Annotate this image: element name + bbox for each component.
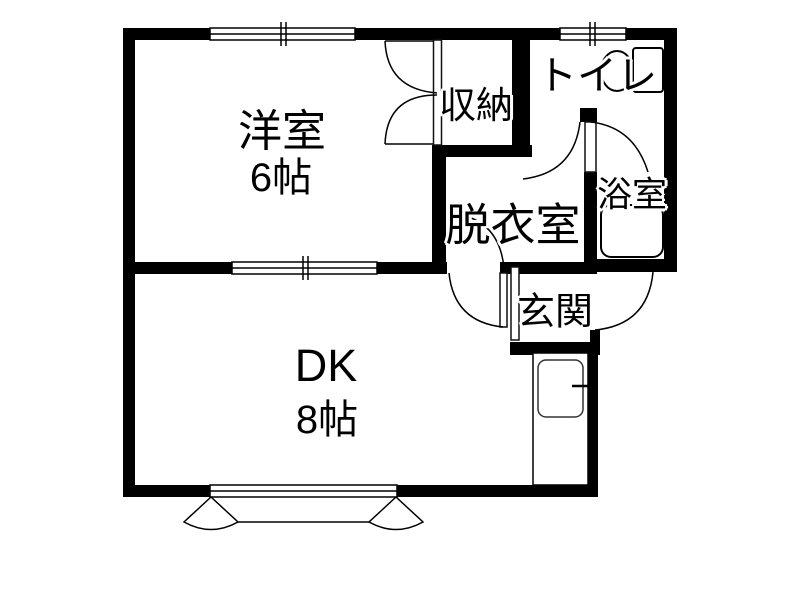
wall-toilet-bottom-b xyxy=(580,108,597,122)
wall-south-a xyxy=(123,485,210,497)
label-closet: 収納 xyxy=(439,75,513,129)
label-dk: DK xyxy=(295,340,358,392)
washroom-door-arc xyxy=(449,273,503,327)
wall-washroom-bath xyxy=(584,172,597,259)
sliding-door-western-dk xyxy=(232,256,377,280)
label-bath: 浴室 xyxy=(597,167,667,218)
casement-right-swing xyxy=(369,497,423,530)
kitchen-sink xyxy=(538,360,583,417)
window-western-top xyxy=(210,22,355,46)
bath-door-leaf xyxy=(585,122,596,172)
label-dk-size: 8帖 xyxy=(296,387,358,445)
wall-toilet-bottom-a xyxy=(512,108,523,122)
wall-dk-right xyxy=(588,348,598,497)
wall-mid-a xyxy=(123,262,232,274)
front-door xyxy=(595,269,653,330)
label-washroom: 脱衣室 xyxy=(445,189,580,254)
casement-left-swing xyxy=(184,497,238,530)
closet-double-doors xyxy=(385,41,437,144)
floor-plan: 洋室 6帖 収納 トイレ 脱衣室 浴室 玄関 DK 8帖 xyxy=(0,0,800,600)
wall-east xyxy=(664,28,677,272)
washroom-door-leaf xyxy=(500,273,507,327)
window-dk-south xyxy=(210,485,397,497)
wall-south-b xyxy=(397,485,598,497)
south-casement-swings xyxy=(184,497,423,530)
bath-door-arc xyxy=(591,122,648,172)
wall-top-a xyxy=(123,28,210,40)
floor-plan-drawing xyxy=(0,0,800,600)
label-entrance: 玄関 xyxy=(517,281,593,336)
wall-western-right xyxy=(432,145,446,274)
label-western-room-size: 6帖 xyxy=(250,145,312,203)
wall-closet-toilet xyxy=(512,40,530,157)
label-toilet: トイレ xyxy=(537,43,657,101)
wall-bath-bottom xyxy=(584,259,677,272)
wall-top-b xyxy=(355,28,560,40)
